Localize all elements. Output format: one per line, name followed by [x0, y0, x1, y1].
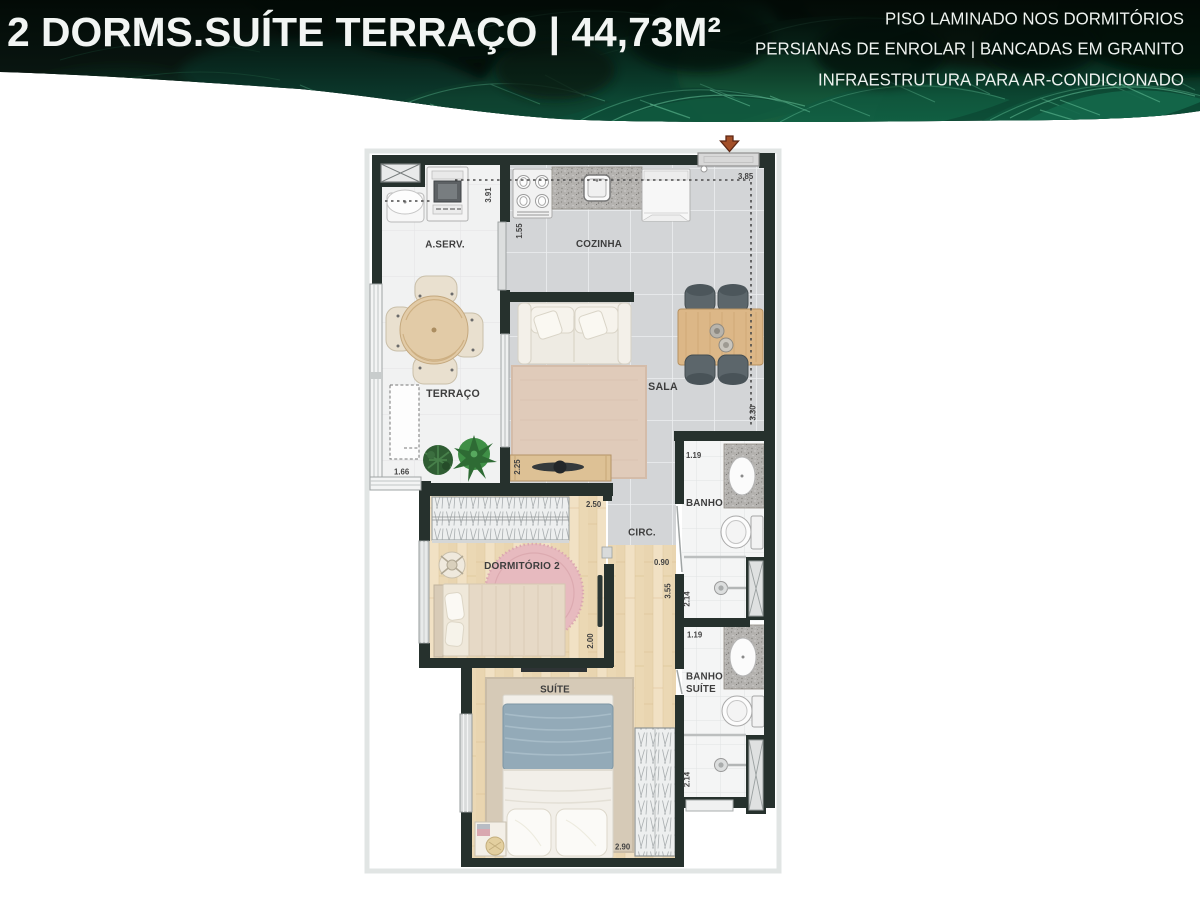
svg-text:TERRAÇO: TERRAÇO: [426, 388, 480, 400]
svg-text:2.14: 2.14: [683, 771, 692, 787]
svg-text:PERSIANAS DE ENROLAR | BANCADA: PERSIANAS DE ENROLAR | BANCADAS EM GRANI…: [755, 39, 1184, 59]
svg-text:1.66: 1.66: [394, 468, 410, 477]
svg-text:2 DORMS.SUÍTE TERRAÇO | 44,73M: 2 DORMS.SUÍTE TERRAÇO | 44,73M²: [7, 9, 721, 55]
svg-text:2.14: 2.14: [683, 591, 692, 607]
svg-text:0.90: 0.90: [654, 558, 670, 567]
svg-text:2.50: 2.50: [586, 500, 602, 509]
svg-text:1.55: 1.55: [515, 223, 524, 239]
svg-text:2.25: 2.25: [513, 459, 522, 475]
svg-text:1.19: 1.19: [686, 451, 702, 460]
svg-text:3.30: 3.30: [749, 405, 758, 421]
svg-text:SUÍTE: SUÍTE: [686, 683, 716, 695]
svg-text:1.19: 1.19: [687, 631, 703, 640]
svg-text:SUÍTE: SUÍTE: [540, 684, 570, 696]
svg-text:3.55: 3.55: [664, 583, 673, 599]
svg-text:3.85: 3.85: [738, 172, 754, 181]
svg-text:INFRAESTRUTURA PARA AR-CONDICI: INFRAESTRUTURA PARA AR-CONDICIONADO: [818, 70, 1184, 90]
svg-text:CIRC.: CIRC.: [628, 528, 656, 539]
svg-text:BANHO: BANHO: [686, 672, 723, 683]
svg-text:3.91: 3.91: [484, 187, 493, 203]
svg-text:COZINHA: COZINHA: [576, 239, 622, 250]
svg-text:PISO LAMINADO NOS DORMITÓRIOS: PISO LAMINADO NOS DORMITÓRIOS: [885, 8, 1184, 29]
svg-text:SALA: SALA: [648, 381, 678, 393]
svg-text:2.00: 2.00: [586, 633, 595, 649]
svg-text:2.90: 2.90: [615, 843, 631, 852]
svg-text:DORMITÓRIO 2: DORMITÓRIO 2: [484, 559, 560, 572]
svg-text:A.SERV.: A.SERV.: [425, 240, 465, 251]
svg-text:BANHO: BANHO: [686, 498, 723, 509]
